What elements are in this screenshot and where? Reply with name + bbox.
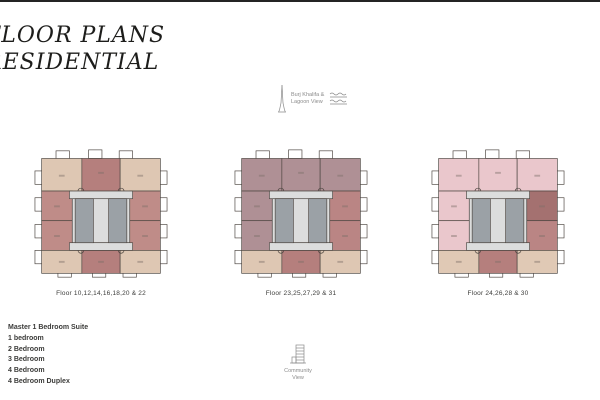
unit-top-right (120, 158, 160, 191)
legend-item-4-bedroom: 4 Bedroom (8, 366, 88, 377)
unit-label-mark (495, 261, 501, 263)
unit-label-mark (342, 205, 348, 207)
balcony (56, 151, 69, 160)
unit-top-center (282, 158, 320, 191)
balcony (453, 151, 466, 160)
unit-top-right (517, 158, 557, 191)
balcony (89, 150, 102, 159)
balcony (486, 150, 499, 159)
core-top-bar (69, 191, 132, 199)
community-building-icon (289, 344, 307, 366)
unit-top-center (479, 158, 517, 191)
unit-label-mark (59, 175, 65, 177)
unit-label-mark (98, 172, 104, 174)
floor-plan-2-drawing (234, 147, 368, 281)
community-view-marker: Community View (276, 344, 320, 383)
community-view-label: Community View (284, 368, 312, 383)
floor-plan-1: Floor 10,12,14,16,18,20 & 22 (34, 147, 168, 297)
core-elevator-block-left (275, 199, 293, 243)
unit-label-mark (342, 235, 348, 237)
unit-label-mark (142, 205, 148, 207)
top-edge-line (0, 0, 600, 2)
unit-label-mark (337, 175, 343, 177)
unit-top-left (42, 158, 82, 191)
floor-plan-3-caption: Floor 24,26,28 & 30 (431, 290, 565, 297)
floor-plan-2-caption: Floor 23,25,27,29 & 31 (234, 290, 368, 297)
floor-plan-2: Floor 23,25,27,29 & 31 (234, 147, 368, 297)
legend-item-3-bedroom: 3 Bedroom (8, 355, 88, 366)
brochure-page: FLOOR PLANS RESIDENTIAL Burj Khalifa & L… (0, 0, 600, 400)
floor-plan-3-drawing (431, 147, 565, 281)
unit-label-mark (539, 205, 545, 207)
unit-top-left (242, 158, 282, 191)
core-bottom-bar (69, 243, 132, 251)
unit-label-mark (534, 261, 540, 263)
core-elevator-block-right (506, 199, 524, 243)
lagoon-waves-icon (329, 92, 349, 106)
core-elevator-block-left (75, 199, 93, 243)
unit-label-mark (59, 261, 65, 263)
legend-item-master-1-bedroom-suite: Master 1 Bedroom Suite (8, 323, 88, 334)
floor-plan-1-caption: Floor 10,12,14,16,18,20 & 22 (34, 290, 168, 297)
burj-khalifa-lagoon-marker: Burj Khalifa & Lagoon View (277, 84, 349, 114)
unit-label-mark (259, 175, 265, 177)
unit-top-center (82, 158, 120, 191)
balcony (319, 151, 332, 160)
unit-label-mark (254, 235, 260, 237)
balcony (516, 151, 529, 160)
unit-type-legend: Master 1 Bedroom Suite 1 bedroom 2 Bedro… (8, 323, 88, 388)
unit-label-mark (337, 261, 343, 263)
burj-khalifa-tower-icon (277, 84, 287, 114)
unit-label-mark (451, 235, 457, 237)
unit-label-mark (137, 175, 143, 177)
unit-label-mark (451, 205, 457, 207)
balcony (119, 151, 132, 160)
unit-label-mark (298, 172, 304, 174)
unit-label-mark (534, 175, 540, 177)
unit-label-mark (456, 261, 462, 263)
unit-label-mark (298, 261, 304, 263)
balcony (256, 151, 269, 160)
floor-plan-3: Floor 24,26,28 & 30 (431, 147, 565, 297)
unit-label-mark (456, 175, 462, 177)
unit-label-mark (54, 235, 60, 237)
legend-item-1-bedroom: 1 bedroom (8, 334, 88, 345)
core-bottom-bar (466, 243, 529, 251)
unit-label-mark (495, 172, 501, 174)
unit-top-right (320, 158, 360, 191)
unit-label-mark (254, 205, 260, 207)
core-elevator-block-left (472, 199, 490, 243)
legend-item-4-bedroom-duplex: 4 Bedroom Duplex (8, 377, 88, 388)
core-elevator-block-right (109, 199, 127, 243)
page-title: FLOOR PLANS RESIDENTIAL (0, 23, 165, 76)
unit-top-left (439, 158, 479, 191)
unit-label-mark (54, 205, 60, 207)
floor-plan-1-drawing (34, 147, 168, 281)
core-bottom-bar (269, 243, 332, 251)
core-top-bar (466, 191, 529, 199)
unit-label-mark (98, 261, 104, 263)
unit-label-mark (259, 261, 265, 263)
core-elevator-block-right (309, 199, 327, 243)
unit-label-mark (137, 261, 143, 263)
balcony (289, 150, 302, 159)
unit-label-mark (539, 235, 545, 237)
burj-khalifa-label: Burj Khalifa & Lagoon View (291, 92, 324, 107)
title-line-1: FLOOR PLANS (0, 23, 165, 50)
legend-item-2-bedroom: 2 Bedroom (8, 345, 88, 356)
unit-label-mark (142, 235, 148, 237)
title-line-2: RESIDENTIAL (0, 50, 165, 77)
core-top-bar (269, 191, 332, 199)
